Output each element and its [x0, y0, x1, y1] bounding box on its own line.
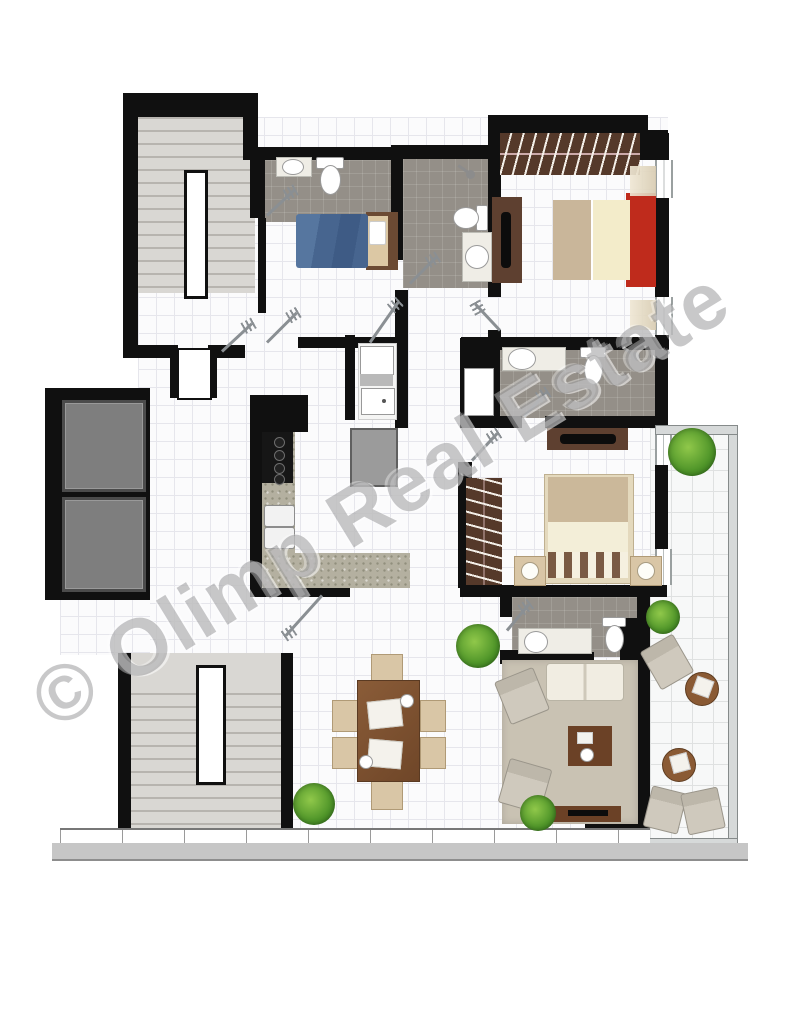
service-shaft: [464, 368, 494, 416]
tv-icon: [560, 434, 616, 444]
bed-duvet: [548, 477, 628, 522]
wall: [655, 465, 668, 549]
wall: [281, 653, 293, 830]
drain-icon: [382, 399, 386, 403]
elevator-cabin: [62, 497, 146, 592]
terrace-railing: [728, 425, 738, 849]
washbasin: [508, 348, 536, 370]
washing-machine: [360, 346, 394, 375]
wall: [258, 218, 266, 313]
wall: [460, 416, 522, 428]
dining-chair: [332, 700, 358, 732]
bed-mattress: [591, 200, 630, 280]
wall: [655, 198, 669, 297]
laundry-shelf: [360, 374, 393, 386]
double-bed-red-frame: [626, 193, 656, 287]
bed-pillows-striped: [548, 552, 628, 578]
lamp-icon: [637, 562, 655, 580]
dining-chair: [371, 781, 403, 810]
window: [655, 297, 673, 335]
washbasin: [465, 245, 489, 269]
wall: [500, 597, 512, 617]
elevator-cabin: [62, 400, 146, 492]
wall: [345, 335, 355, 420]
kitchen-sink: [264, 505, 295, 527]
wall: [123, 93, 258, 117]
wall: [123, 93, 138, 352]
toilet-bowl: [453, 207, 479, 229]
wardrobe-hangers: [466, 478, 502, 585]
potted-plant: [520, 795, 556, 831]
window: [655, 160, 673, 198]
burner-icon: [274, 474, 285, 485]
bed-sheet: [548, 522, 628, 552]
washbasin: [524, 631, 548, 653]
floor-plan: © Olimp Real Estate: [0, 0, 791, 1024]
laundry-sink: [361, 388, 395, 415]
place-setting: [367, 698, 404, 729]
staircase-void: [196, 665, 226, 785]
potted-plant: [646, 600, 680, 634]
plate-icon: [359, 755, 373, 769]
bed-duvet: [553, 200, 591, 280]
wall: [118, 653, 131, 830]
kitchen-peninsula: [262, 553, 410, 588]
table-decor: [577, 732, 593, 744]
table-decor: [580, 748, 594, 762]
wall: [250, 395, 308, 432]
nightstand: [630, 556, 662, 586]
tv-icon: [501, 212, 511, 268]
wardrobe-hangers: [500, 133, 640, 175]
nightstand: [514, 556, 546, 586]
potted-plant: [456, 624, 500, 668]
wall: [460, 585, 667, 597]
curtain: [630, 300, 656, 330]
dining-chair: [420, 737, 446, 769]
dining-chair: [371, 654, 403, 683]
lamp-icon: [521, 562, 539, 580]
cooktop: [262, 432, 293, 483]
burner-icon: [274, 463, 285, 474]
burner-icon: [274, 450, 285, 461]
curtain: [630, 166, 656, 196]
single-bed-blue: [296, 214, 368, 268]
burner-icon: [274, 437, 285, 448]
washbasin: [282, 159, 304, 175]
wall: [123, 345, 170, 358]
toilet-bowl: [584, 355, 603, 385]
lobby-floor: [60, 598, 150, 655]
staircase-void: [184, 170, 208, 299]
wall: [545, 416, 668, 428]
toilet-bowl: [320, 165, 341, 195]
wall: [655, 133, 669, 160]
dining-chair: [420, 700, 446, 732]
fridge: [350, 428, 398, 487]
entrance-door: [177, 348, 212, 400]
toilet-bowl: [605, 625, 624, 653]
pillow: [369, 221, 386, 245]
potted-plant: [293, 783, 335, 825]
wall: [250, 147, 265, 218]
potted-plant: [668, 428, 716, 476]
tv-icon: [568, 810, 608, 816]
wall: [488, 115, 648, 135]
wall: [655, 340, 668, 418]
kitchen-sink: [264, 527, 295, 549]
dining-chair: [332, 737, 358, 769]
window-sill: [52, 843, 748, 861]
sofa: [546, 663, 624, 701]
wall: [391, 145, 500, 159]
plate-icon: [400, 694, 414, 708]
